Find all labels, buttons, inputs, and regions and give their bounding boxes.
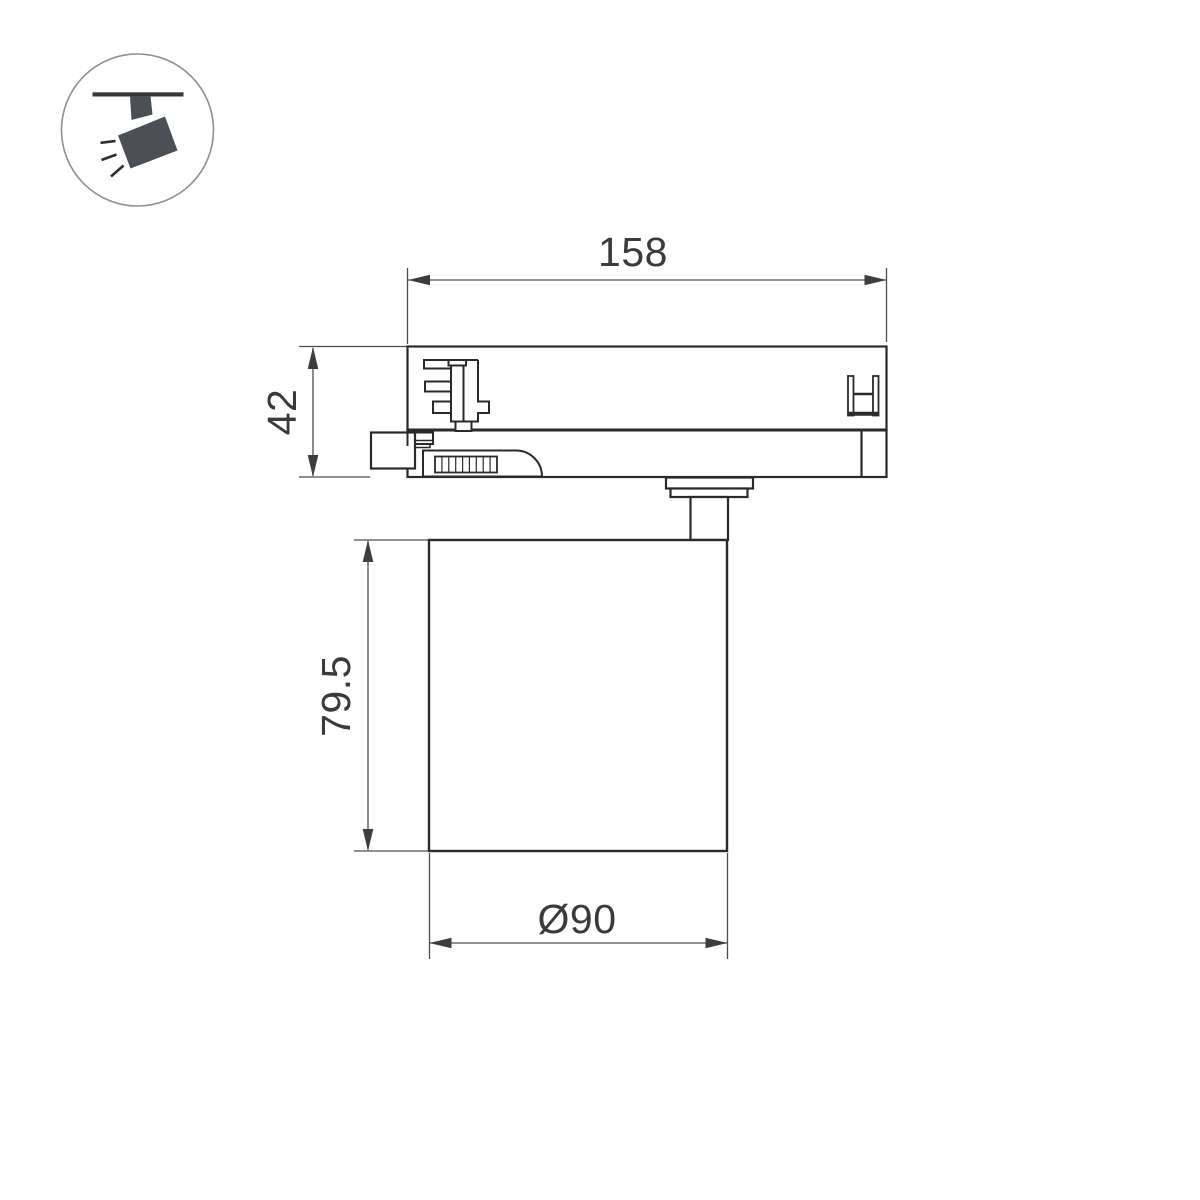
track-adapter [371,347,887,478]
stem-flange-upper [666,478,753,489]
stem-flange-lower [671,489,748,498]
contact-prong-bottom [433,402,451,414]
contact-prong-top [424,360,451,369]
technical-drawing-svg: 158 42 79.5 Ø90 [0,0,1200,1200]
arrow-left [430,938,452,948]
dimension-label-adapter-height: 42 [259,389,305,436]
arrow-top [363,540,374,562]
arrow-left [408,275,430,285]
icon-track-bar [93,92,184,96]
arrow-right [706,938,728,948]
dimension-label-adapter-length: 158 [598,229,668,275]
adapter-upper-box [408,347,887,431]
drawing-canvas: 158 42 79.5 Ø90 [0,0,1200,1200]
dimension-label-body-diameter: Ø90 [538,896,617,942]
dimension-adapter-length: 158 [408,229,887,344]
contact-prong-middle [425,382,451,392]
track-spotlight-icon [62,54,214,206]
prong-foot [456,422,472,432]
arrow-top [308,347,319,369]
arrow-bottom [363,829,374,851]
dimension-label-body-height: 79.5 [313,655,359,737]
dimension-body-height: 79.5 [313,540,428,851]
arrow-bottom [308,455,319,477]
prong-shaft [451,366,464,422]
arrow-right [865,275,887,285]
mounting-stem [666,478,753,541]
stem-column [691,497,729,540]
dimension-body-diameter: Ø90 [430,853,728,959]
ventilation-grille [435,457,497,473]
lamp-housing [429,540,727,851]
